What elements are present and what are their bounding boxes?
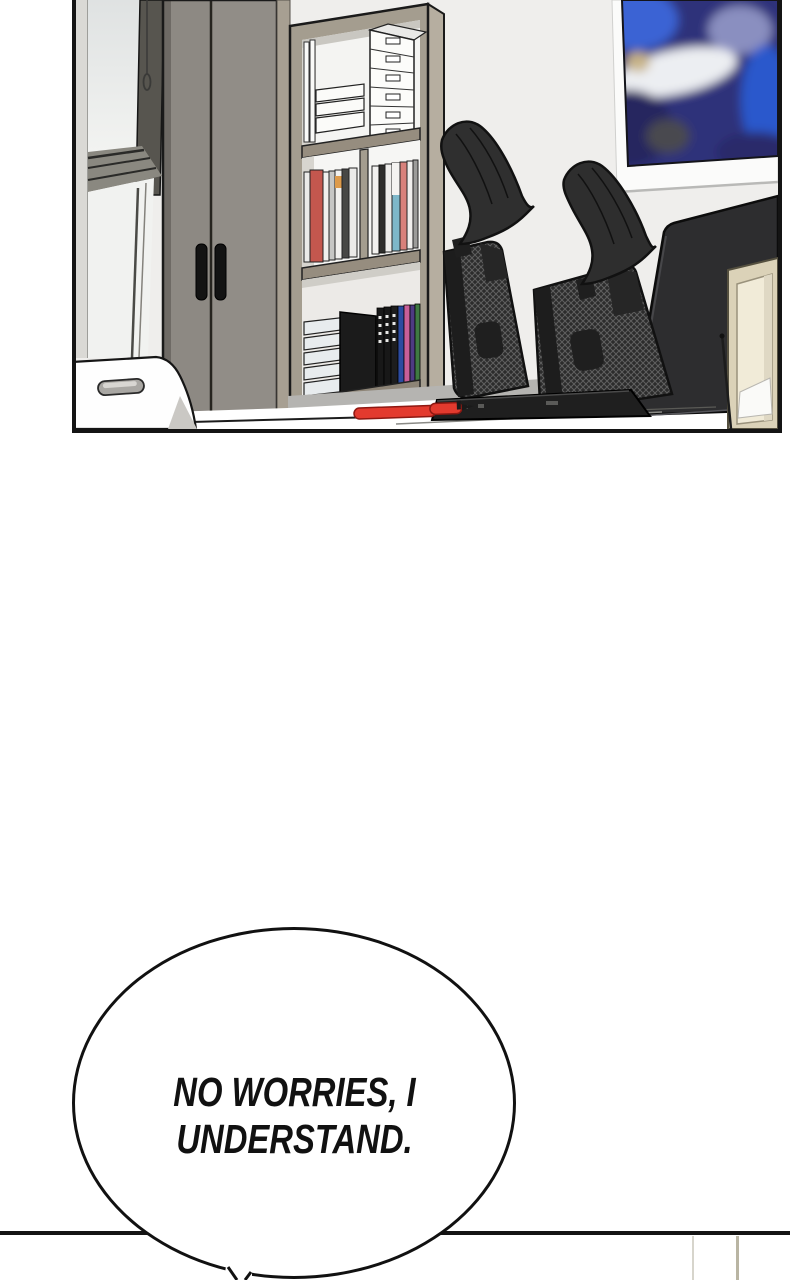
panel-office-scene bbox=[72, 0, 782, 433]
speech-line-1: NO WORRIES, I bbox=[173, 1069, 415, 1116]
speech-text: NO WORRIES, I UNDERSTAND. bbox=[173, 1069, 415, 1163]
cabinet-handle-left bbox=[196, 244, 207, 300]
next-panel-art-line-1 bbox=[692, 1236, 694, 1280]
easel-board bbox=[720, 258, 779, 429]
books-right bbox=[372, 160, 418, 254]
white-binders bbox=[304, 40, 315, 142]
cabinet-handle-right bbox=[215, 244, 226, 300]
paper-tray-stack-top bbox=[316, 84, 364, 133]
printer-handle bbox=[98, 378, 145, 395]
next-panel-art-line-2 bbox=[736, 1236, 739, 1280]
speech-bubble: NO WORRIES, I UNDERSTAND. bbox=[72, 927, 516, 1279]
bookshelf bbox=[290, 4, 444, 410]
books-left bbox=[304, 168, 357, 262]
office-scene-art bbox=[76, 0, 778, 429]
speech-line-2: UNDERSTAND. bbox=[173, 1116, 415, 1163]
speech-bubble-tail bbox=[196, 1246, 266, 1280]
wardrobe-cabinet bbox=[163, 0, 290, 429]
black-box bbox=[340, 312, 376, 398]
webtoon-page: NO WORRIES, I UNDERSTAND. bbox=[0, 0, 800, 1280]
